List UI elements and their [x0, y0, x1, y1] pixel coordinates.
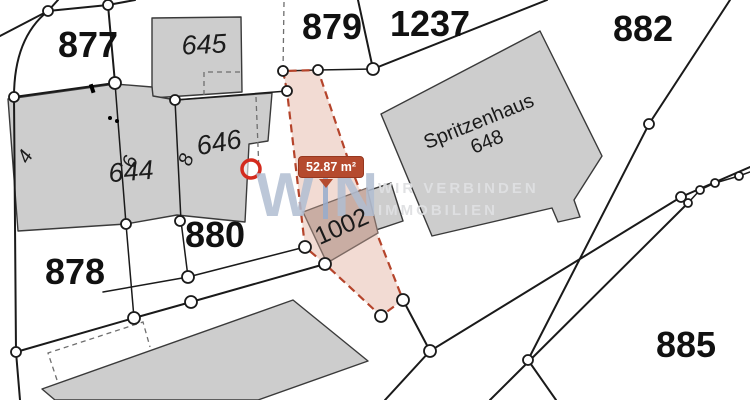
parcel-label-880: 880: [185, 214, 245, 256]
building-label-645: 645: [181, 28, 228, 61]
area-badge-pointer-icon: [319, 179, 333, 188]
boundary-line: [490, 203, 688, 400]
parcel-label-877: 877: [58, 24, 118, 66]
boundary-line: [403, 300, 430, 351]
watermark-tagline-1: WIR VERBINDEN: [378, 180, 539, 197]
cadastral-map[interactable]: W N WIR VERBINDEN IMMOBILIEN 877 879 123…: [0, 0, 750, 400]
boundary-line: [48, 0, 135, 11]
parcel-label-885: 885: [656, 324, 716, 366]
parcel-label-879: 879: [302, 6, 362, 48]
parcel-label-882: 882: [613, 8, 673, 50]
parcel-label-878: 878: [45, 251, 105, 293]
boundary-curve: [14, 11, 48, 97]
boundary-line: [16, 318, 134, 352]
parcel-label-1237: 1237: [390, 3, 470, 45]
watermark-tagline-2: IMMOBILIEN: [378, 202, 498, 219]
building-bottom-large-footprint: [42, 300, 368, 400]
boundary-line: [528, 360, 556, 400]
area-measurement-badge[interactable]: 52.87 m²: [298, 156, 364, 178]
